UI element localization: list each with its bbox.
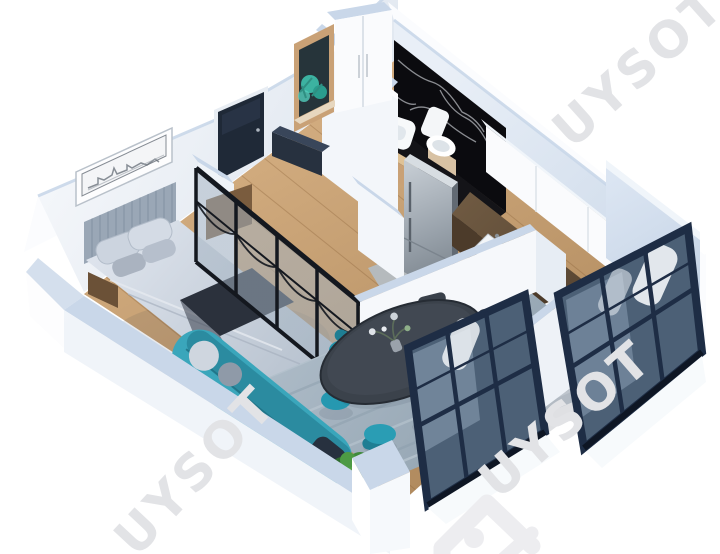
watermark-top-right: UYSOT bbox=[541, 0, 720, 159]
door-handle bbox=[256, 128, 260, 132]
logo-dot bbox=[464, 528, 484, 548]
floor-plan-render: UYSOT UYSOT UYSOT bbox=[0, 0, 720, 554]
wardrobe bbox=[327, 2, 392, 113]
bottom-corner-wall bbox=[352, 440, 410, 554]
apartment-scene: UYSOT UYSOT UYSOT bbox=[0, 0, 720, 554]
